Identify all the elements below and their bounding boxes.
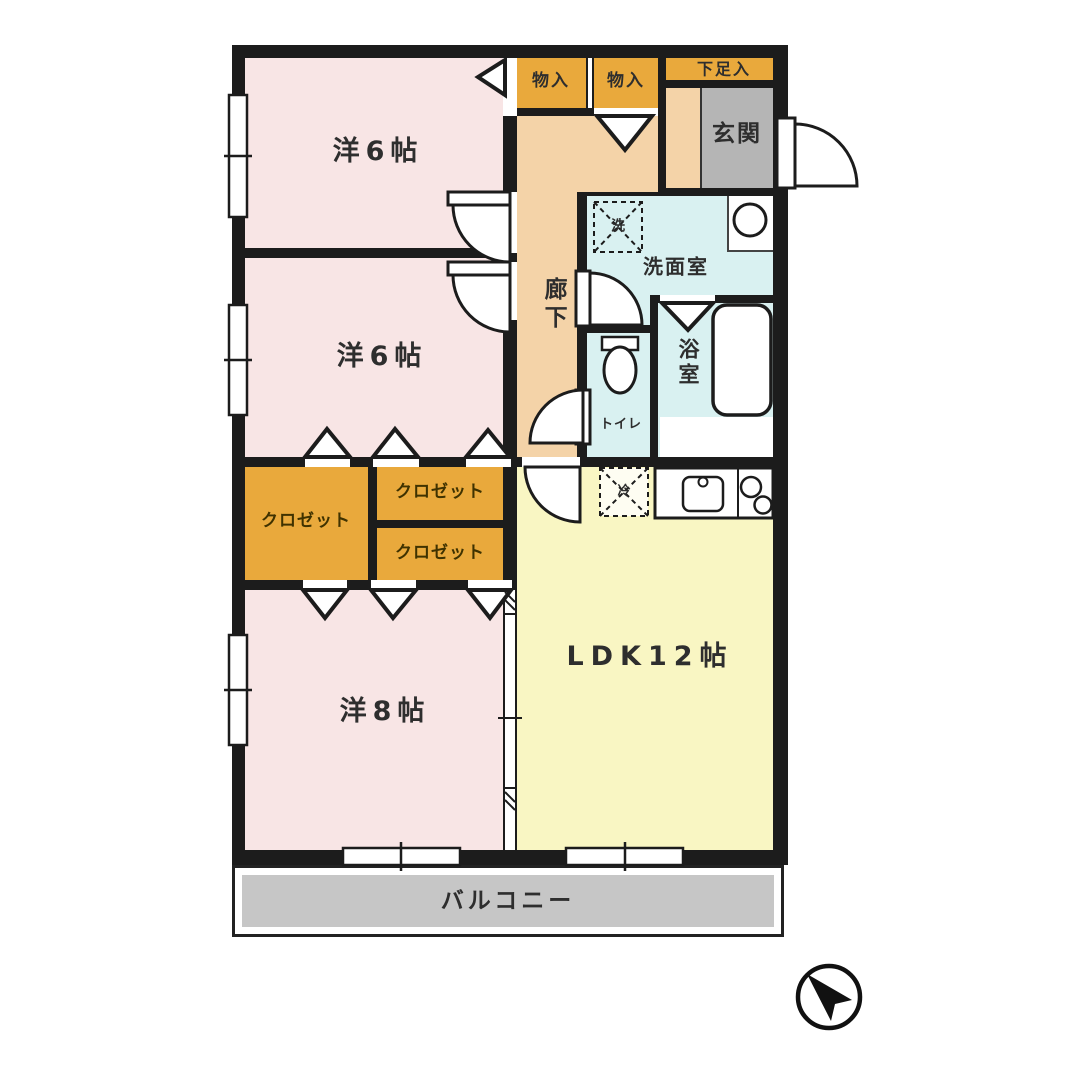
door-gap	[660, 295, 715, 303]
door-gap	[594, 108, 658, 116]
north-arrow-icon	[798, 966, 860, 1028]
label-closet3: クロゼット	[395, 545, 485, 563]
sliding-partition-channel	[503, 590, 517, 850]
label-corridor: 廊下	[541, 277, 565, 333]
storage-divider	[586, 58, 594, 108]
door-gap	[577, 390, 590, 445]
washroom-lower	[587, 295, 650, 325]
door-gap	[373, 457, 419, 467]
label-washing-machine: 洗	[611, 220, 625, 235]
bath-floor	[660, 417, 773, 457]
label-storage1: 物入	[532, 73, 570, 91]
door-gap	[468, 580, 512, 590]
label-ldk: LDK12帖	[566, 643, 733, 671]
door-gap	[303, 580, 347, 590]
label-storage2: 物入	[607, 73, 645, 91]
label-closet2: クロゼット	[395, 484, 485, 502]
label-washroom: 洗面室	[643, 257, 709, 278]
door-gap	[522, 457, 580, 467]
room-corridor-top	[517, 116, 658, 192]
label-closet1: クロゼット	[261, 513, 351, 531]
door-gap	[503, 262, 517, 320]
label-bedroom3: 洋8帖	[340, 698, 431, 726]
washbasin-counter	[727, 196, 773, 252]
label-entrance: 玄関	[712, 122, 762, 146]
label-balcony: バルコニー	[441, 889, 576, 913]
label-bedroom2: 洋6帖	[337, 343, 428, 371]
door-gap	[305, 457, 350, 467]
label-bedroom1: 洋6帖	[333, 138, 424, 166]
door-gap	[577, 270, 590, 327]
floor-plan: 洋6帖 洋6帖 洋8帖 LDK12帖 廊下 玄関 下足入 物入 物入 洗面室 浴…	[0, 0, 1080, 1080]
label-bath: 浴室	[677, 338, 699, 388]
room-toilet	[587, 333, 650, 457]
door-gap	[371, 580, 416, 590]
door-swing-entrance	[777, 118, 857, 188]
entrance-hall	[666, 88, 700, 188]
door-gap	[466, 457, 511, 467]
door-gap	[503, 58, 517, 116]
label-toilet: トイレ	[600, 418, 642, 432]
label-refrigerator: 冷	[617, 485, 630, 499]
door-gap	[503, 192, 517, 253]
label-shoe-storage: 下足入	[697, 62, 751, 79]
